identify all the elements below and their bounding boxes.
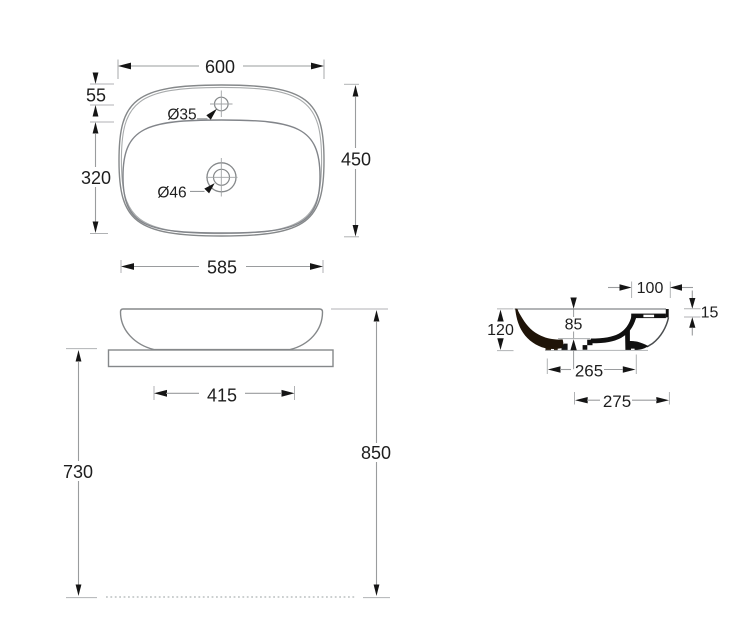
svg-text:275: 275 [603,392,631,411]
svg-text:320: 320 [81,168,111,188]
svg-text:585: 585 [207,258,237,278]
svg-text:850: 850 [361,443,391,463]
svg-text:55: 55 [86,86,106,106]
svg-text:15: 15 [701,305,719,322]
svg-text:450: 450 [341,150,371,170]
svg-text:Ø35: Ø35 [167,107,196,124]
svg-text:265: 265 [575,361,603,380]
svg-text:120: 120 [487,322,514,339]
svg-text:85: 85 [565,317,583,334]
svg-text:415: 415 [207,386,237,406]
svg-text:Ø46: Ø46 [157,184,186,201]
svg-text:730: 730 [63,462,93,482]
svg-text:100: 100 [637,280,664,297]
svg-text:600: 600 [205,57,235,77]
